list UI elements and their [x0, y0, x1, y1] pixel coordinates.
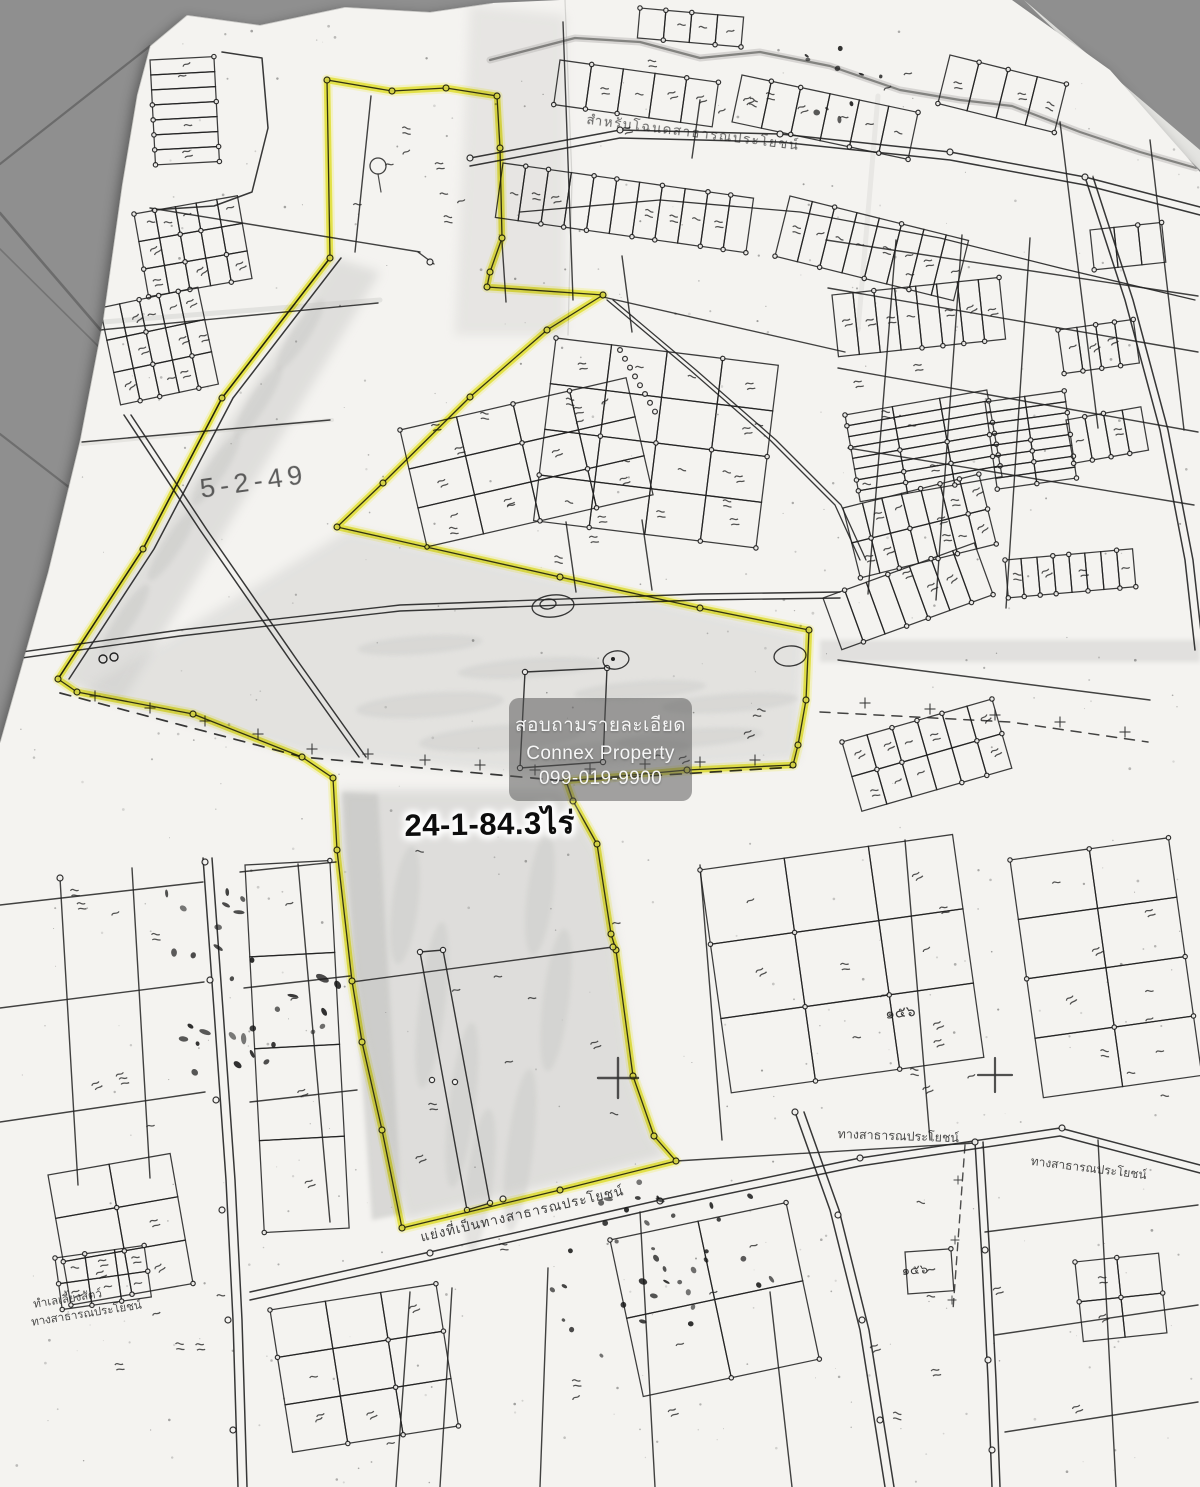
watermark-line1: สอบถามรายละเอียด: [509, 710, 692, 740]
watermark-line2: Connex Property: [509, 743, 692, 765]
road-label-public-right: ทางสาธารณประโยชน์: [837, 1124, 959, 1148]
property-survey-photo: 24-1-84.3ไร่ 5-2-49 สำหรับโฉนดสาธารณประโ…: [0, 0, 1200, 1487]
watermark-line3: 099-019-9900: [509, 768, 692, 790]
parcel-numeral: ๑๕๖: [884, 999, 917, 1026]
parcel-numeral: ๑๕๖: [901, 1258, 929, 1281]
watermark: สอบถามรายละเอียด Connex Property 099-019…: [509, 698, 692, 801]
area-size-label: 24-1-84.3ไร่: [404, 797, 575, 850]
